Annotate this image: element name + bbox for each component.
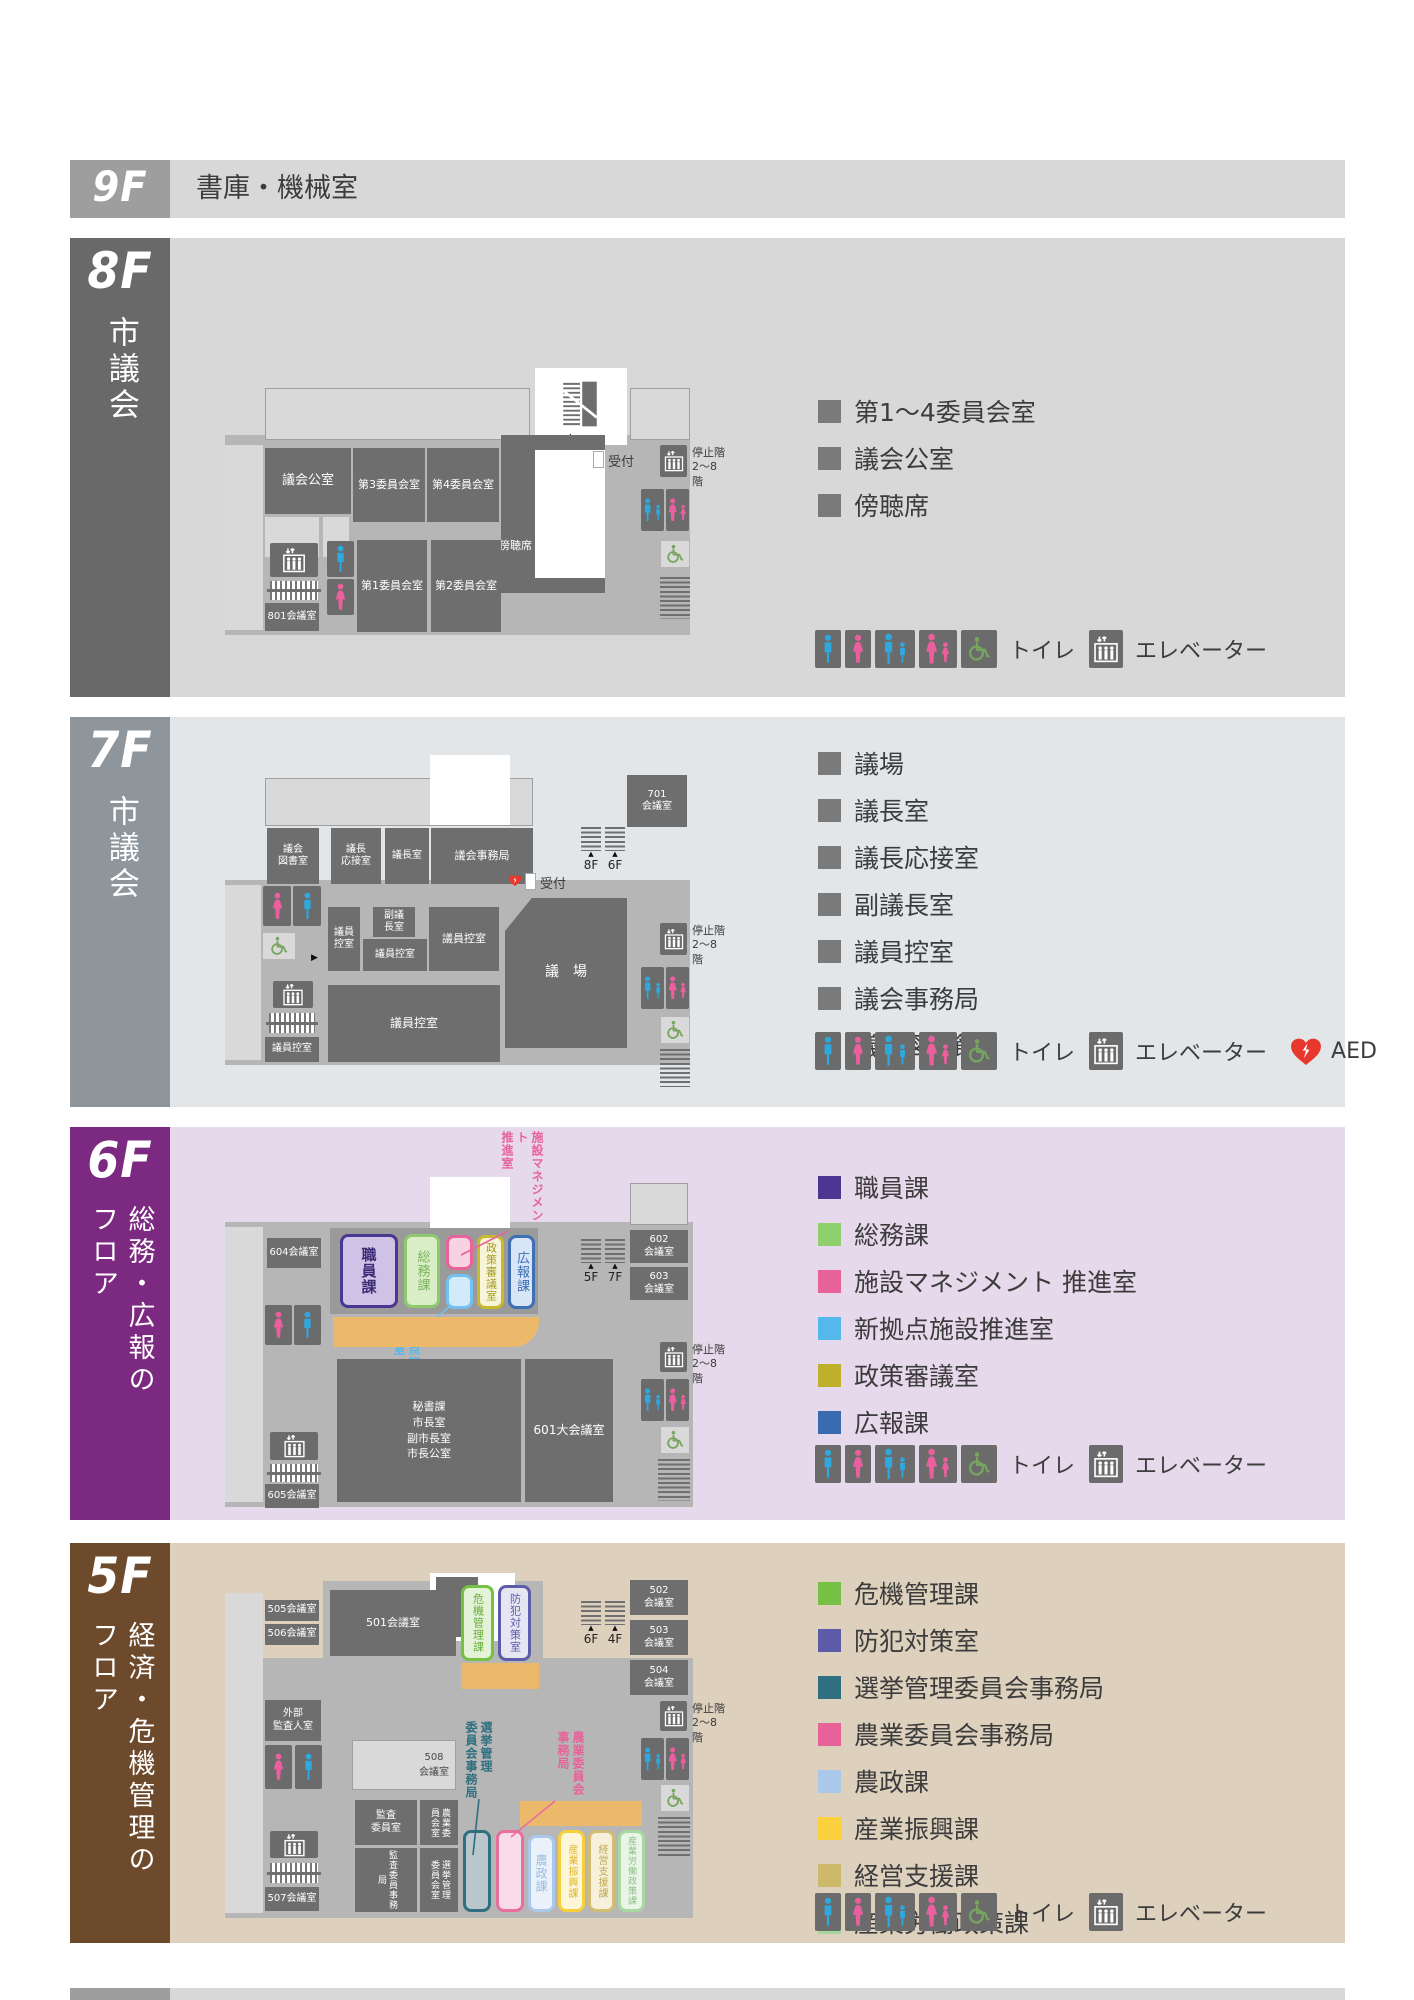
- man-icon: [820, 1036, 836, 1066]
- floorplan-6f: ▲5F ▲7F 604会議室 602 会議室 603 会議室 職員課 総務課 政…: [205, 1177, 725, 1512]
- woman-icon: [271, 1753, 286, 1781]
- legend-square: [818, 494, 841, 517]
- elevator-stop-floors: 停止階 2〜8階: [692, 446, 725, 489]
- room-801: 801会議室: [265, 603, 319, 631]
- room-601: 601大会議室: [525, 1359, 613, 1502]
- man-icon: [300, 1311, 315, 1339]
- room-kansa-jimukyoku: 監査委員事務局: [355, 1848, 417, 1912]
- legend-item: 副議長室: [818, 886, 979, 922]
- legend-item: 議会事務局: [818, 980, 979, 1016]
- section-5f-content: ▲6F ▲4F 502 会議室 503 会議室 504 会議室 505会議室 5…: [170, 1543, 1345, 1943]
- toilet-men-tile: [815, 1893, 841, 1931]
- legend-item: 総務課: [818, 1216, 1137, 1252]
- legend-square: [818, 1723, 841, 1746]
- stairs-hatch: [581, 1239, 601, 1263]
- room-603: 603 会議室: [630, 1267, 688, 1300]
- toilet-men-tile: [641, 1379, 664, 1421]
- legend-square: [818, 893, 841, 916]
- floor-label-9f: 9F: [74, 160, 166, 211]
- room-fukugicho-shitsu: 副議 長室: [373, 907, 415, 937]
- toilet-women-tile: [845, 1032, 871, 1070]
- accessible-toilet-tile: [961, 1445, 997, 1483]
- floorplan-5f: ▲6F ▲4F 502 会議室 503 会議室 504 会議室 505会議室 5…: [205, 1573, 725, 1923]
- floor-label-box-next: [70, 1988, 170, 2000]
- woman-child-icon: [667, 1746, 688, 1772]
- icon-legend-7f: トイレ エレベーター AED: [815, 1032, 1387, 1070]
- legend-square: [818, 447, 841, 470]
- legend-square: [818, 1223, 841, 1246]
- woman-child-icon: [924, 1035, 952, 1067]
- counter-band: [461, 1663, 539, 1689]
- man-child-icon: [881, 1896, 909, 1928]
- room-giin-hikaeshitsu-big: 議員控室: [328, 985, 500, 1062]
- elevator-tile: [1089, 1032, 1123, 1070]
- man-child-icon: [642, 1746, 663, 1772]
- room-unlabeled: [630, 1183, 688, 1225]
- legend-item: 政策審議室: [818, 1357, 1137, 1393]
- elevator-icon: [283, 1434, 306, 1458]
- man-icon: [820, 1449, 836, 1479]
- wheelchair-icon: [665, 1020, 685, 1040]
- stairs-hatch: [658, 1459, 690, 1501]
- room-506: 506会議室: [265, 1624, 319, 1645]
- legend-item: 広報課: [818, 1404, 1137, 1440]
- room-shokuinka-label: 職員課: [359, 1247, 380, 1295]
- toilet-label: トイレ: [1009, 633, 1075, 665]
- room-sangyo-rodo-label: 産業労働政策課: [625, 1836, 638, 1906]
- accessible-toilet-tile: [661, 1427, 689, 1453]
- wheelchair-icon: [966, 1038, 992, 1064]
- room-nogyo-jimukyoku: [496, 1830, 524, 1912]
- elevator-icon: [1093, 1898, 1119, 1926]
- callout-shisetsu-management: 施設マネジメント 推進室: [499, 1131, 544, 1233]
- floor-label-box-7f: 7F 市議会: [70, 717, 170, 1107]
- toilet-women-tile: [265, 1745, 292, 1789]
- man-icon: [820, 1897, 836, 1927]
- room-bohan-label: 防犯対策室: [507, 1593, 523, 1653]
- room-605: 605会議室: [265, 1484, 319, 1508]
- legend-item: 農業委員会事務局: [818, 1716, 1104, 1752]
- elevator-icon: [1093, 635, 1119, 663]
- woman-icon: [850, 1036, 866, 1066]
- elevator-label: エレベーター: [1135, 1035, 1267, 1067]
- room-light: [225, 885, 261, 1060]
- room-505: 505会議室: [265, 1600, 319, 1621]
- woman-child-icon: [667, 975, 688, 1001]
- floor-6f-side-title: 総務・広報の フロア: [84, 1205, 157, 1397]
- elevator-tile: [660, 923, 687, 955]
- legend-square: [818, 1317, 841, 1340]
- room-gijo: 議 場: [505, 898, 627, 1048]
- toilet-men-tile: [327, 541, 354, 577]
- elevator-stop-floors: 停止階 2〜8階: [692, 1702, 725, 1745]
- legend-item: 選挙管理委員会事務局: [818, 1669, 1104, 1705]
- room-keiei-shienka-label: 経営支援課: [594, 1844, 609, 1899]
- legend-item: 農政課: [818, 1763, 1104, 1799]
- room-sangyo-shinkoka-label: 産業振興課: [564, 1844, 579, 1899]
- legend-square: [818, 1364, 841, 1387]
- floor-label-7f: 7F: [74, 717, 166, 779]
- woman-icon: [850, 634, 866, 664]
- stairs-tile: [270, 1464, 318, 1482]
- elevator-stop-floors: 停止階 2〜8階: [692, 924, 725, 967]
- room-nogyo-iinkaishitsu-label: 農業委 員会室: [428, 1808, 450, 1838]
- legend-item: 傍聴席: [818, 487, 1036, 523]
- legend-item: 経営支援課: [818, 1857, 1104, 1893]
- woman-icon: [271, 1311, 286, 1339]
- aed-label: AED: [1331, 1039, 1377, 1064]
- room-noseika-label: 農政課: [533, 1854, 550, 1893]
- toilet-label: トイレ: [1009, 1896, 1075, 1928]
- legend-item: 産業振興課: [818, 1810, 1104, 1846]
- elevator-label: エレベーター: [1135, 633, 1267, 665]
- stairs-hatch: [605, 1239, 625, 1263]
- reception: 受付: [525, 873, 566, 892]
- direction-arrow-icon: ▶: [311, 953, 318, 963]
- man-icon: [333, 545, 348, 573]
- room-701: 701 会議室: [627, 775, 687, 827]
- accessible-toilet-tile: [961, 630, 997, 668]
- icon-legend-5f: トイレ エレベーター: [815, 1893, 1277, 1931]
- toilet-men-child-tile: [875, 630, 915, 668]
- stairs-tile: [270, 1863, 318, 1883]
- toilet-men-tile: [815, 1032, 841, 1070]
- toilet-men-tile: [293, 886, 321, 926]
- toilet-men-tile: [295, 1745, 322, 1789]
- toilet-women-tile: [666, 489, 689, 531]
- room-senkyo-shitsu-label: 選挙管理 委員会室: [428, 1860, 450, 1900]
- woman-child-icon: [667, 497, 688, 523]
- man-icon: [300, 892, 315, 920]
- toilet-women-tile: [265, 1305, 292, 1345]
- man-child-icon: [881, 633, 909, 665]
- floor-label-5f: 5F: [74, 1543, 166, 1605]
- stairs-dest-pair: ▲8F ▲6F: [581, 827, 625, 871]
- man-child-icon: [642, 497, 663, 523]
- section-5f: 5F 経済・危機管理の フロア ▲6F ▲4F 502 会議室 503 会議室 …: [70, 1543, 1345, 1943]
- room-somuka-label: 総務課: [413, 1250, 432, 1292]
- toilet-men-tile: [641, 967, 664, 1009]
- callout-line-pink: [505, 1797, 561, 1841]
- legend-square: [818, 400, 841, 423]
- elevator-tile: [1089, 1445, 1123, 1483]
- toilet-men-tile: [815, 630, 841, 668]
- floor-guide-page: 9F 書庫・機械室 8F 市議会 ▲ 7F 議会公室 第3委員会室: [0, 0, 1414, 2000]
- wheelchair-icon: [966, 636, 992, 662]
- room-gicho-osetsushitsu: 議長 応接室: [331, 828, 381, 884]
- room-dai4-iinkai: 第4委員会室: [427, 448, 499, 522]
- room-light: [225, 1593, 263, 1913]
- room-504: 504 会議室: [630, 1660, 688, 1695]
- room-giin-hikaeshitsu: 議員控室: [429, 907, 499, 971]
- room-dai1-iinkai: 第1委員会室: [357, 540, 427, 632]
- room-shokuinka: 職員課: [340, 1234, 398, 1308]
- section-next-peek: [70, 1988, 1345, 2000]
- legend-8f: 第1〜4委員会室 議会公室 傍聴席: [818, 393, 1036, 534]
- legend-item: 危機管理課: [818, 1575, 1104, 1611]
- legend-square: [818, 940, 841, 963]
- reception-counter-icon: [593, 451, 604, 468]
- legend-item: 議長応接室: [818, 839, 979, 875]
- woman-icon: [850, 1449, 866, 1479]
- room-somuka: 総務課: [404, 1234, 440, 1308]
- floor-label-8f: 8F: [74, 238, 166, 300]
- room-hisho-block: 秘書課 市長室 副市長室 市長公室: [337, 1359, 521, 1502]
- section-6f: 6F 総務・広報の フロア ▲5F ▲7F 604会議室 602 会議室 603…: [70, 1127, 1345, 1520]
- man-child-icon: [642, 975, 663, 1001]
- section-9f: 9F 書庫・機械室: [70, 160, 1345, 218]
- man-icon: [820, 634, 836, 664]
- elevator-stop-floors: 停止階 2〜8階: [692, 1343, 725, 1386]
- wheelchair-icon: [269, 936, 289, 956]
- elevator-tile: [660, 445, 687, 477]
- toilet-women-tile: [666, 1379, 689, 1421]
- room-gichoshitsu: 議長室: [385, 828, 429, 884]
- room-dai3-iinkai: 第3委員会室: [353, 448, 425, 522]
- accessible-toilet-tile: [961, 1032, 997, 1070]
- counter-band: [333, 1317, 539, 1347]
- floor-7f-side-title: 市議会: [99, 795, 141, 903]
- stairs-hatch: [658, 1817, 690, 1857]
- toilet-women-tile: [666, 967, 689, 1009]
- toilet-men-tile: [815, 1445, 841, 1483]
- section-9f-content: 書庫・機械室: [170, 160, 1345, 218]
- room-508-label: 508 会議室: [419, 1752, 449, 1778]
- accessible-toilet-tile: [661, 541, 689, 567]
- room-kiki-kanrika: 危機管理課: [461, 1585, 494, 1661]
- elevator-icon: [664, 1705, 684, 1727]
- toilet-men-tile: [294, 1305, 321, 1345]
- stairs-dest-pair: ▲6F ▲4F: [581, 1601, 625, 1645]
- elevator-icon: [1093, 1037, 1119, 1065]
- stairs-dest-pair: ▲5F ▲7F: [581, 1239, 625, 1283]
- elevator-tile: [270, 1432, 318, 1460]
- man-child-icon: [642, 1387, 663, 1413]
- room-503: 503 会議室: [630, 1620, 688, 1655]
- elevator-icon: [1093, 1450, 1119, 1478]
- room-gikai-koshitsu: 議会公室: [265, 448, 351, 514]
- stairs-hatch: [660, 1049, 690, 1087]
- room-light: [225, 445, 263, 630]
- room-keiei-shienka: 経営支援課: [588, 1830, 615, 1912]
- floor-label-6f: 6F: [74, 1127, 166, 1189]
- floorplan-7f: ▲8F ▲6F 議会 図書室 議長 応接室 議長室 議会事務局 701 会議室 …: [205, 755, 725, 1085]
- toilet-label: トイレ: [1009, 1035, 1075, 1067]
- floor-5f-side-title: 経済・危機管理の フロア: [84, 1621, 157, 1877]
- elevator-tile: [270, 1831, 318, 1858]
- legend-square: [818, 1770, 841, 1793]
- elevator-tile: [1089, 1893, 1123, 1931]
- legend-square: [818, 1270, 841, 1293]
- elevator-icon: [664, 1346, 684, 1368]
- elevator-tile: [660, 1701, 687, 1731]
- man-child-icon: [881, 1035, 909, 1067]
- toilet-women-tile: [845, 1893, 871, 1931]
- room-602: 602 会議室: [630, 1230, 688, 1263]
- accessible-toilet-tile: [961, 1893, 997, 1931]
- toilet-women-child-tile: [919, 1445, 957, 1483]
- room-kiki-label: 危機管理課: [470, 1593, 486, 1653]
- legend-6f: 職員課 総務課 施設マネジメント 推進室 新拠点施設推進室 政策審議室 広報課: [818, 1169, 1137, 1451]
- legend-square: [818, 1176, 841, 1199]
- room-604: 604会議室: [267, 1238, 321, 1268]
- room-kansa-jimukyoku-label: 監査委員事務局: [375, 1848, 397, 1912]
- room-507: 507会議室: [265, 1887, 319, 1911]
- aed-icon: [508, 874, 522, 887]
- aed-heart-icon: [1289, 1036, 1323, 1067]
- legend-square: [818, 846, 841, 869]
- elevator-icon: [664, 450, 684, 472]
- reception-counter-icon: [525, 873, 536, 890]
- legend-square: [818, 1629, 841, 1652]
- legend-item: 議会公室: [818, 440, 1036, 476]
- woman-icon: [850, 1897, 866, 1927]
- room-senkyo-kanri-iinkaishitsu: 選挙管理 委員会室: [420, 1848, 458, 1912]
- legend-item: 第1〜4委員会室: [818, 393, 1036, 429]
- section-8f-content: ▲ 7F 議会公室 第3委員会室 第4委員会室 傍聴席 受付 801会議室: [170, 238, 1345, 697]
- legend-item: 施設マネジメント 推進室: [818, 1263, 1137, 1299]
- accessible-toilet-tile: [661, 1785, 689, 1811]
- stairs-tile: [270, 581, 318, 600]
- legend-item: 議場: [818, 745, 979, 781]
- icon-legend-8f: トイレ エレベーター: [815, 630, 1277, 668]
- room-gaibu-kansa: 外部 監査人室: [265, 1700, 321, 1741]
- callout-line-teal: [467, 1795, 487, 1860]
- elevator-icon: [282, 983, 304, 1006]
- legend-square: [818, 1817, 841, 1840]
- elevator-tile: [660, 1342, 687, 1372]
- woman-icon: [333, 583, 348, 611]
- toilet-women-tile: [666, 1738, 689, 1780]
- woman-child-icon: [924, 1448, 952, 1480]
- legend-item: 防犯対策室: [818, 1622, 1104, 1658]
- callout-line-pink: [453, 1229, 513, 1259]
- woman-child-icon: [667, 1387, 688, 1413]
- room-gikai-toshoshitsu: 議会 図書室: [267, 828, 319, 884]
- floor-9f-title: 書庫・機械室: [170, 160, 1345, 218]
- toilet-men-tile: [641, 489, 664, 531]
- man-icon: [301, 1753, 316, 1781]
- elevator-tile: [270, 543, 318, 577]
- legend-square: [818, 752, 841, 775]
- elevator-tile: [273, 981, 313, 1008]
- floor-8f-side-title: 市議会: [99, 316, 141, 424]
- stairs-tile: [269, 1013, 315, 1033]
- elevator-icon: [283, 1833, 306, 1857]
- wheelchair-icon: [966, 1899, 992, 1925]
- section-8f: 8F 市議会 ▲ 7F 議会公室 第3委員会室 第4委員会室: [70, 238, 1345, 697]
- elevator-icon: [664, 928, 684, 950]
- elevator-label: エレベーター: [1135, 1896, 1267, 1928]
- toilet-women-child-tile: [919, 1032, 957, 1070]
- reception: 受付: [593, 451, 634, 470]
- toilet-men-child-tile: [875, 1893, 915, 1931]
- floor-label-box-8f: 8F 市議会: [70, 238, 170, 697]
- stairs-hatch: [581, 1601, 601, 1625]
- stairs-hatch: [581, 827, 601, 851]
- section-6f-content: ▲5F ▲7F 604会議室 602 会議室 603 会議室 職員課 総務課 政…: [170, 1127, 1345, 1520]
- room-nogyo-iinkaishitsu: 農業委 員会室: [420, 1800, 458, 1845]
- legend-7f: 議場 議長室 議長応接室 副議長室 議員控室 議会事務局 議会図書館: [818, 745, 979, 1074]
- floor-label-box-5f: 5F 経済・危機管理の フロア: [70, 1543, 170, 1943]
- room-502: 502 会議室: [630, 1580, 688, 1615]
- woman-icon: [270, 892, 285, 920]
- legend-square: [818, 799, 841, 822]
- section-7f: 7F 市議会 ▲8F ▲6F 議会 図書室 議長 応接室 議長室 議会事務局 7…: [70, 717, 1345, 1107]
- accessible-toilet-tile: [263, 933, 295, 959]
- room-noseika: 農政課: [528, 1835, 555, 1912]
- floor-label-box-6f: 6F 総務・広報の フロア: [70, 1127, 170, 1520]
- stair-shaft: [430, 755, 510, 825]
- elevator-icon: [282, 547, 306, 573]
- room-bohan-taisakushitsu: 防犯対策室: [498, 1585, 531, 1661]
- room-dai2-iinkai: 第2委員会室: [431, 540, 501, 632]
- room-501: 501会議室: [330, 1590, 456, 1656]
- toilet-women-tile: [263, 886, 291, 926]
- stairs-hatch: [660, 577, 690, 619]
- room-unlabeled: [630, 388, 690, 440]
- room-giin-hikaeshitsu: 議員控室: [363, 939, 427, 971]
- room-bochoseki-label: 傍聴席: [499, 537, 532, 553]
- legend-square: [818, 1411, 841, 1434]
- legend-item: 職員課: [818, 1169, 1137, 1205]
- floorplan-8f: ▲ 7F 議会公室 第3委員会室 第4委員会室 傍聴席 受付 801会議室: [205, 285, 725, 650]
- elevator-tile: [1089, 630, 1123, 668]
- toilet-women-tile: [845, 630, 871, 668]
- wheelchair-icon: [665, 544, 685, 564]
- icon-legend-6f: トイレ エレベーター: [815, 1445, 1277, 1483]
- room-kansa-iinshitsu: 監査 委員室: [355, 1800, 417, 1845]
- elevator-label: エレベーター: [1135, 1448, 1267, 1480]
- toilet-women-tile: [327, 579, 354, 615]
- stairs-hatch: [605, 1601, 625, 1625]
- legend-item: 新拠点施設推進室: [818, 1310, 1137, 1346]
- legend-item: 議長室: [818, 792, 979, 828]
- toilet-label: トイレ: [1009, 1448, 1075, 1480]
- woman-child-icon: [924, 1896, 952, 1928]
- room-kohoka-label: 広報課: [512, 1251, 531, 1293]
- room-giin-hikaeshitsu: 議員控室: [265, 1037, 319, 1062]
- room-sangyo-rodo-seisakuka: 産業労働政策課: [618, 1830, 645, 1912]
- legend-square: [818, 1582, 841, 1605]
- section-7f-content: ▲8F ▲6F 議会 図書室 議長 応接室 議長室 議会事務局 701 会議室 …: [170, 717, 1345, 1107]
- toilet-men-child-tile: [875, 1445, 915, 1483]
- accessible-toilet-tile: [661, 1017, 689, 1043]
- toilet-women-child-tile: [919, 630, 957, 668]
- stairs-icon: [561, 378, 599, 430]
- stairs-hatch: [605, 827, 625, 851]
- floor-label-box-9f: 9F: [70, 160, 170, 218]
- wheelchair-icon: [966, 1451, 992, 1477]
- legend-square: [818, 1864, 841, 1887]
- legend-square: [818, 987, 841, 1010]
- woman-child-icon: [924, 633, 952, 665]
- room-sangyo-shinkoka: 産業振興課: [558, 1830, 585, 1912]
- legend-item: 議員控室: [818, 933, 979, 969]
- room-giin-hikaeshitsu: 議員 控室: [328, 907, 360, 971]
- man-child-icon: [881, 1448, 909, 1480]
- toilet-men-child-tile: [875, 1032, 915, 1070]
- room-light: [225, 1227, 263, 1502]
- toilet-women-child-tile: [919, 1893, 957, 1931]
- wheelchair-icon: [665, 1788, 685, 1808]
- room-unlabeled: [265, 388, 530, 440]
- wheelchair-icon: [665, 1430, 685, 1450]
- legend-square: [818, 1676, 841, 1699]
- toilet-women-tile: [845, 1445, 871, 1483]
- toilet-men-tile: [641, 1738, 664, 1780]
- room-508: 508 会議室: [352, 1740, 456, 1790]
